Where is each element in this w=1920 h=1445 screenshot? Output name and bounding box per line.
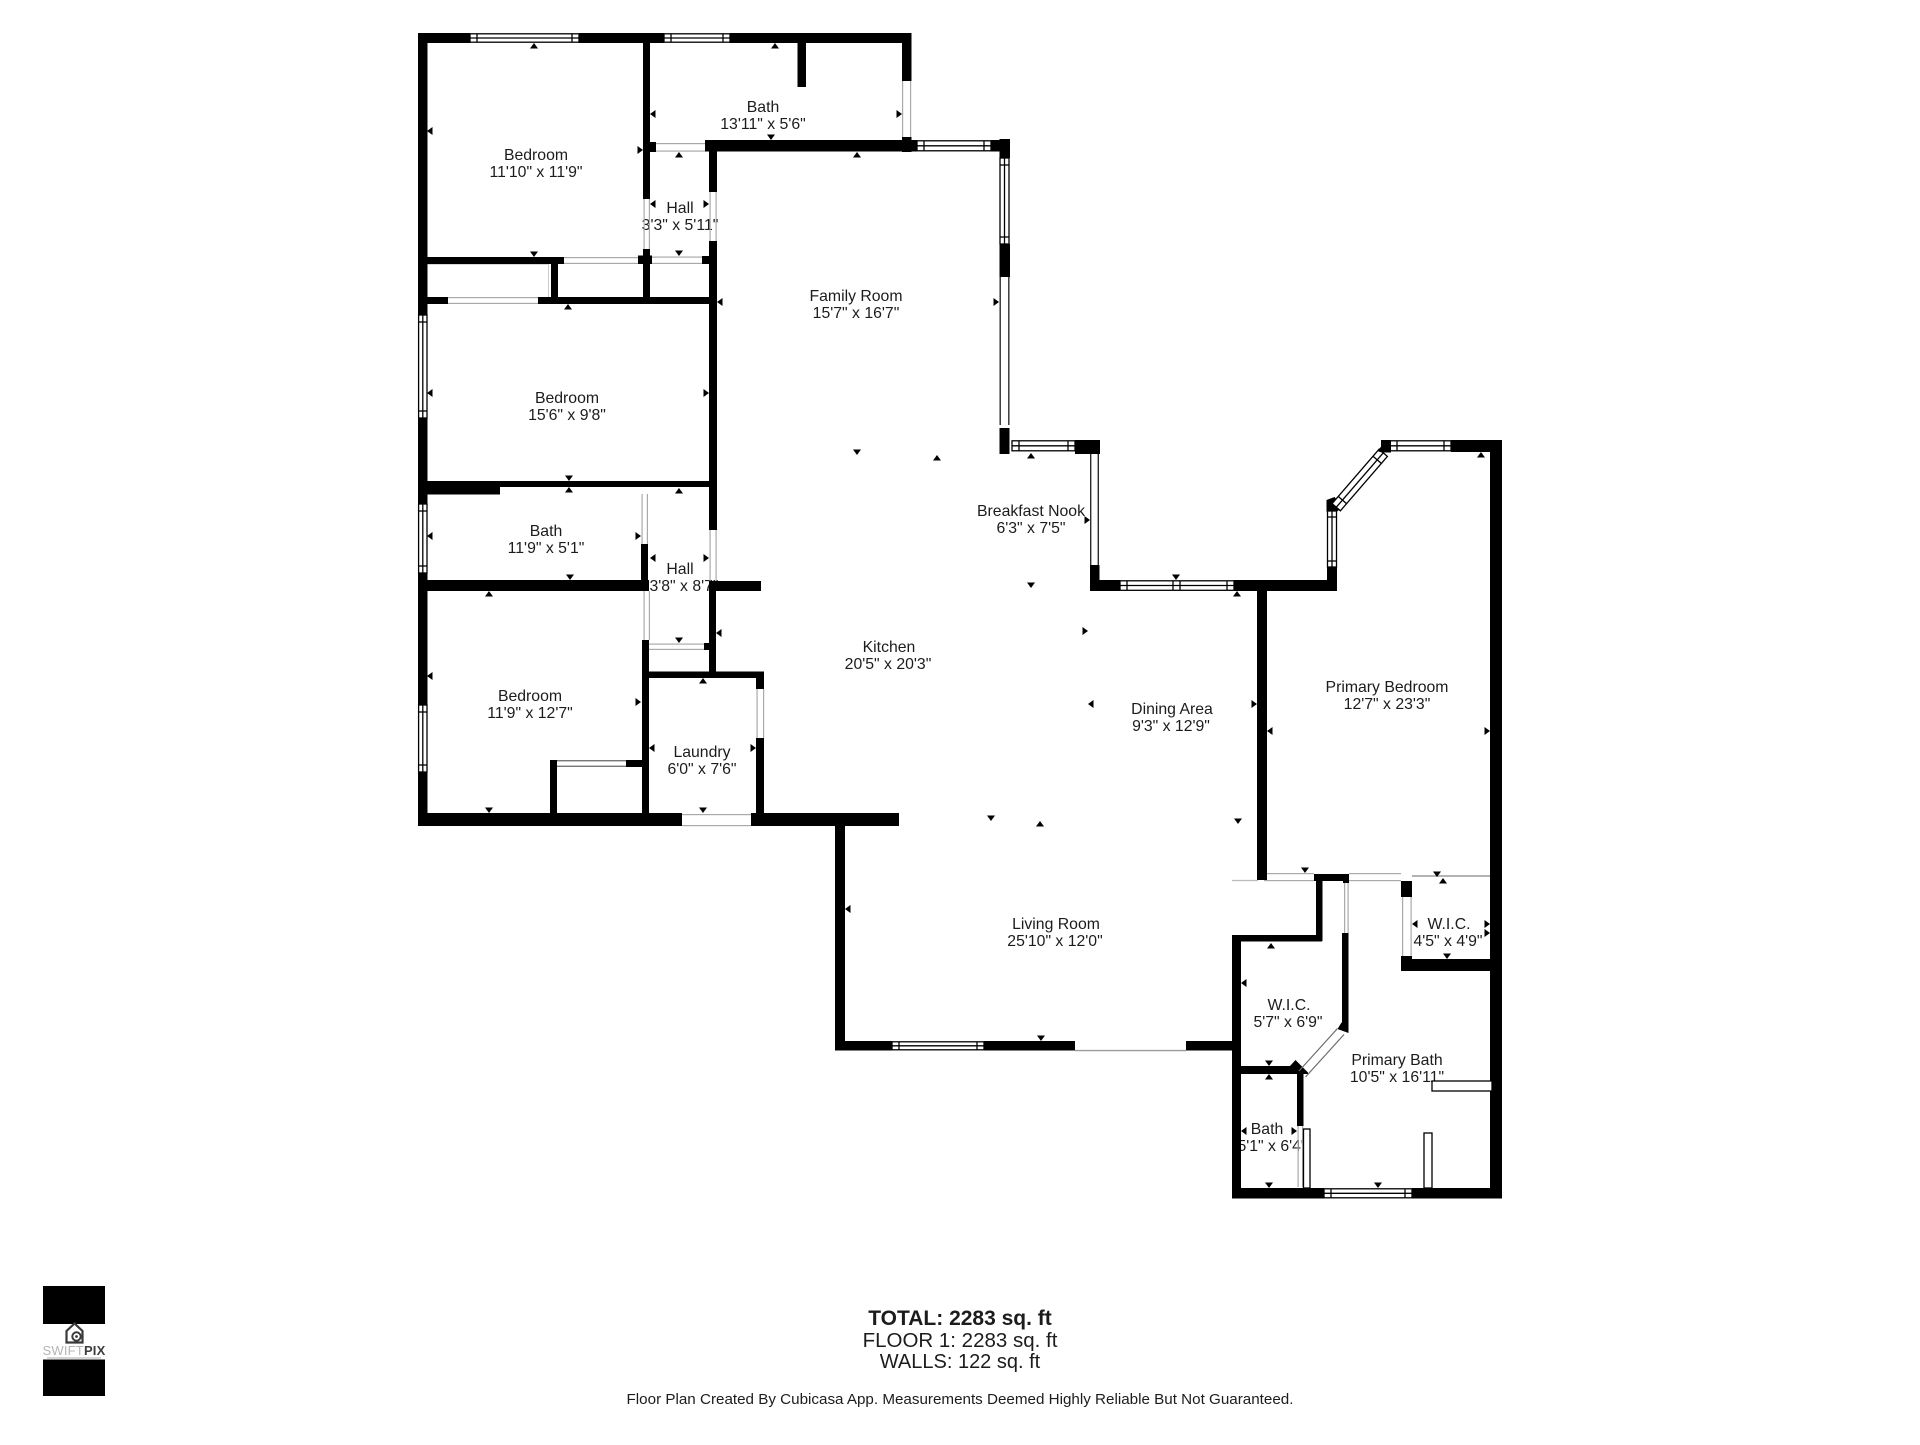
svg-text:Bedroom: Bedroom bbox=[504, 147, 568, 164]
svg-text:15'7" x 16'7": 15'7" x 16'7" bbox=[813, 305, 900, 322]
svg-text:WALLS: 122 sq. ft: WALLS: 122 sq. ft bbox=[880, 1351, 1041, 1373]
svg-text:25'10" x 12'0": 25'10" x 12'0" bbox=[1007, 933, 1102, 950]
svg-text:Bedroom: Bedroom bbox=[535, 390, 599, 407]
svg-text:5'7" x 6'9": 5'7" x 6'9" bbox=[1253, 1014, 1322, 1031]
svg-text:9'3" x 12'9": 9'3" x 12'9" bbox=[1132, 718, 1210, 735]
svg-text:20'5" x 20'3": 20'5" x 20'3" bbox=[845, 656, 932, 673]
svg-text:3'3" x 5'11": 3'3" x 5'11" bbox=[642, 217, 719, 234]
svg-text:11'10" x 11'9": 11'10" x 11'9" bbox=[489, 164, 582, 181]
svg-text:Hall: Hall bbox=[666, 561, 693, 578]
svg-text:Hall: Hall bbox=[666, 200, 693, 217]
svg-text:Living Room: Living Room bbox=[1012, 916, 1100, 933]
svg-text:Kitchen: Kitchen bbox=[863, 639, 916, 656]
svg-text:Bath: Bath bbox=[1251, 1121, 1284, 1138]
svg-text:12'7" x 23'3": 12'7" x 23'3" bbox=[1344, 696, 1431, 713]
svg-text:Primary Bedroom: Primary Bedroom bbox=[1326, 679, 1449, 696]
svg-text:6'0" x 7'6": 6'0" x 7'6" bbox=[667, 761, 736, 778]
svg-text:11'9" x 5'1": 11'9" x 5'1" bbox=[508, 540, 585, 557]
svg-text:TOTAL: 2283 sq. ft: TOTAL: 2283 sq. ft bbox=[868, 1307, 1052, 1330]
svg-text:W.I.C.: W.I.C. bbox=[1427, 916, 1470, 933]
svg-text:15'6" x 9'8": 15'6" x 9'8" bbox=[528, 407, 606, 424]
svg-text:Laundry: Laundry bbox=[673, 744, 730, 761]
svg-text:FLOOR 1: 2283 sq. ft: FLOOR 1: 2283 sq. ft bbox=[863, 1329, 1058, 1352]
svg-text:10'5" x 16'11": 10'5" x 16'11" bbox=[1350, 1069, 1444, 1086]
svg-text:4'5" x 4'9": 4'5" x 4'9" bbox=[1413, 933, 1482, 950]
svg-text:SWIFTPIX: SWIFTPIX bbox=[43, 1343, 106, 1358]
svg-text:W.I.C.: W.I.C. bbox=[1267, 997, 1310, 1014]
svg-text:6'3" x 7'5": 6'3" x 7'5" bbox=[996, 520, 1065, 537]
svg-text:Family Room: Family Room bbox=[809, 288, 902, 305]
svg-text:Floor Plan Created By Cubicasa: Floor Plan Created By Cubicasa App. Meas… bbox=[627, 1391, 1294, 1408]
svg-text:Primary Bath: Primary Bath bbox=[1351, 1052, 1442, 1069]
svg-text:5'1" x 6'4": 5'1" x 6'4" bbox=[1237, 1138, 1306, 1155]
svg-text:Bedroom: Bedroom bbox=[498, 688, 562, 705]
svg-text:Bath: Bath bbox=[747, 99, 780, 116]
svg-text:3'8" x 8'7": 3'8" x 8'7" bbox=[649, 578, 718, 595]
svg-text:Bath: Bath bbox=[530, 523, 563, 540]
svg-text:11'9" x 12'7": 11'9" x 12'7" bbox=[487, 705, 572, 722]
svg-text:13'11" x 5'6": 13'11" x 5'6" bbox=[720, 116, 805, 133]
svg-text:Breakfast Nook: Breakfast Nook bbox=[977, 503, 1085, 520]
svg-text:Dining Area: Dining Area bbox=[1131, 701, 1213, 718]
